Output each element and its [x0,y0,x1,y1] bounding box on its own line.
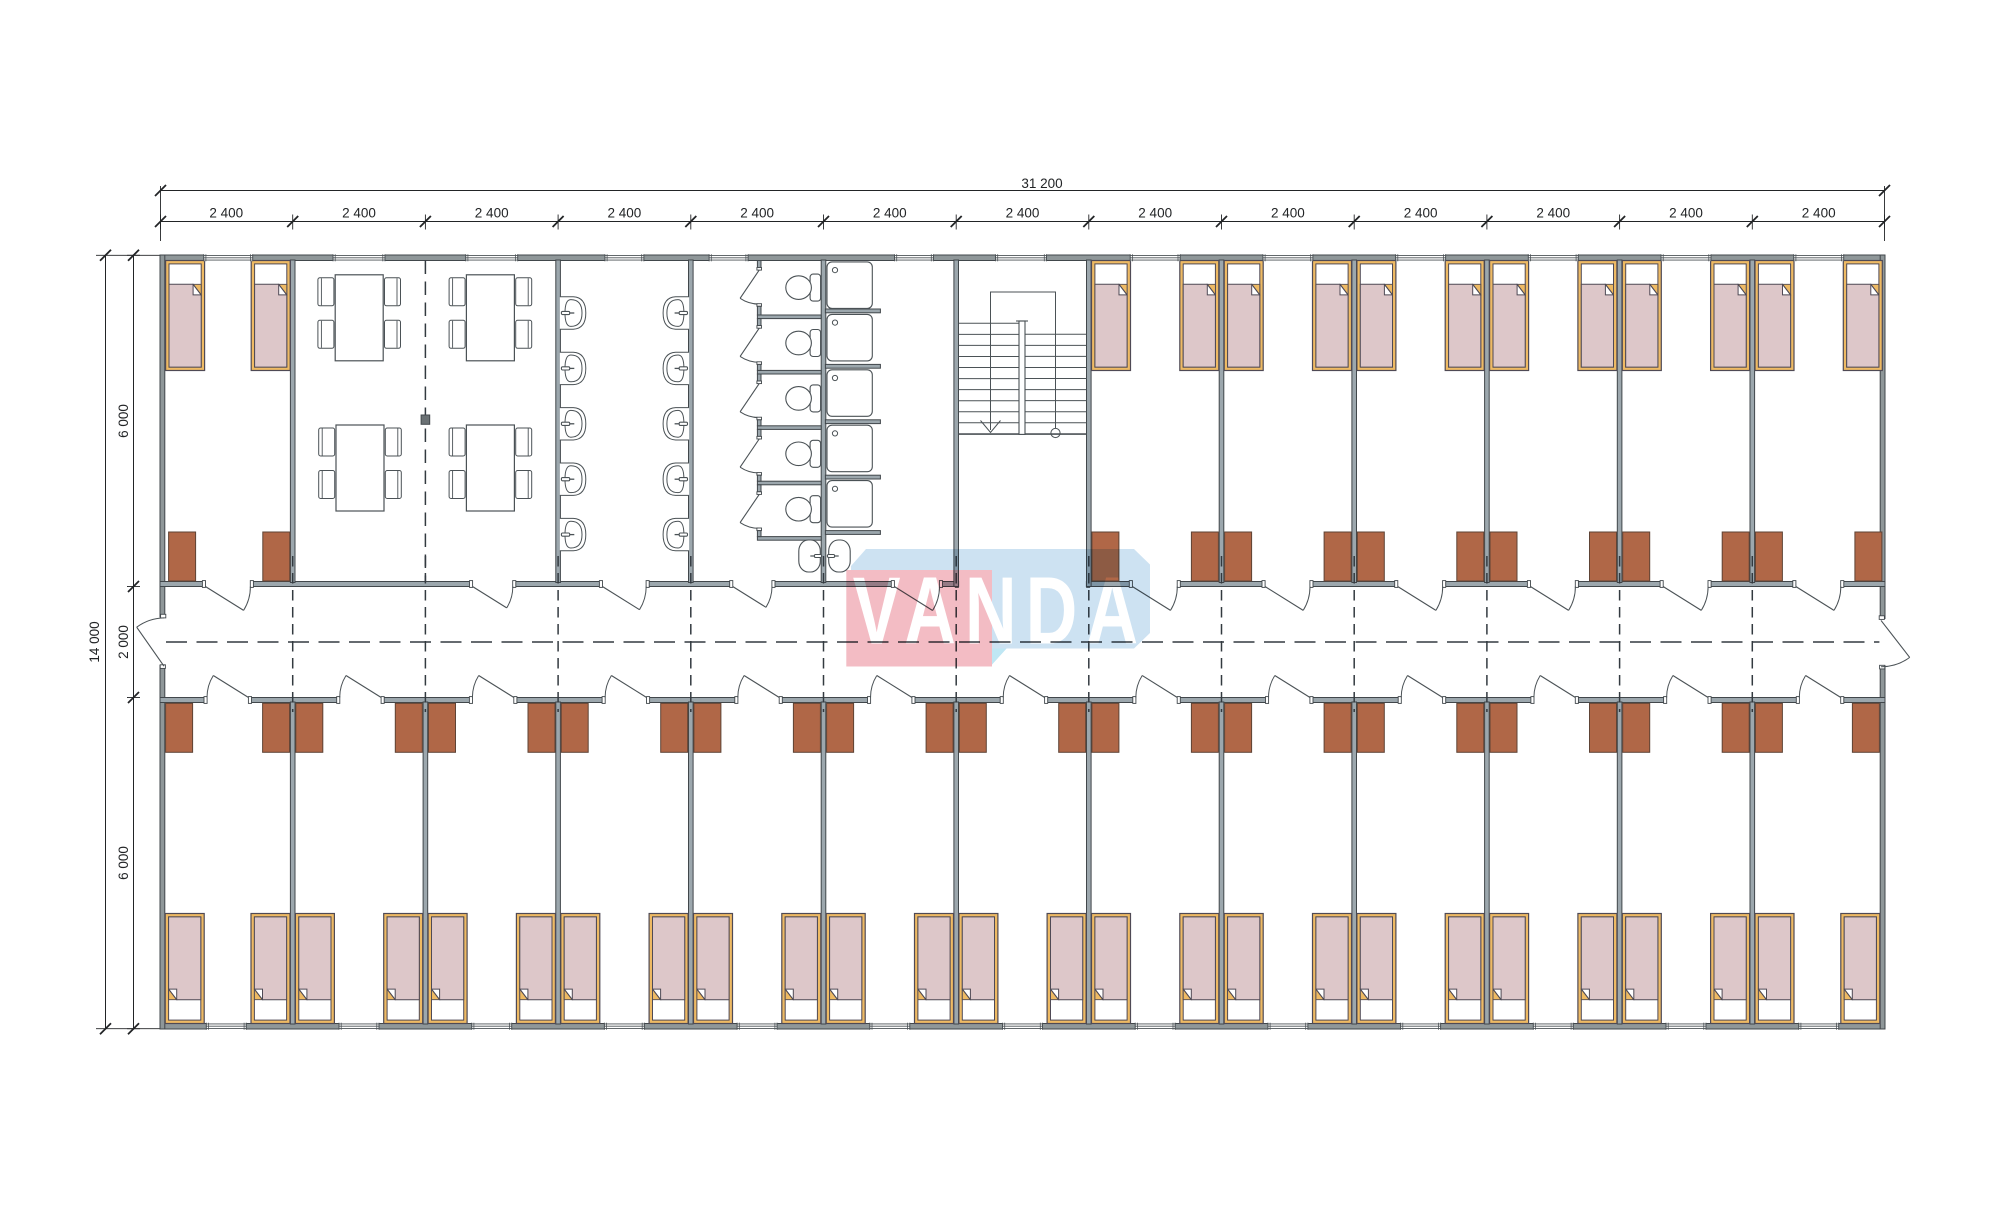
svg-text:2 000: 2 000 [116,625,131,659]
svg-text:2 400: 2 400 [1138,206,1172,221]
svg-text:2 400: 2 400 [1404,206,1438,221]
svg-text:2 400: 2 400 [1802,206,1836,221]
svg-text:14 000: 14 000 [87,621,102,662]
svg-text:2 400: 2 400 [1006,206,1040,221]
svg-text:6 000: 6 000 [116,404,131,438]
svg-text:2 400: 2 400 [209,206,243,221]
svg-text:6 000: 6 000 [116,846,131,880]
svg-text:2 400: 2 400 [342,206,376,221]
svg-text:2 400: 2 400 [1669,206,1703,221]
svg-text:2 400: 2 400 [1271,206,1305,221]
svg-text:2 400: 2 400 [1536,206,1570,221]
svg-text:2 400: 2 400 [740,206,774,221]
svg-text:2 400: 2 400 [475,206,509,221]
svg-text:VANDA: VANDA [853,558,1147,664]
svg-text:2 400: 2 400 [608,206,642,221]
svg-text:31 200: 31 200 [1021,176,1062,191]
svg-text:2 400: 2 400 [873,206,907,221]
